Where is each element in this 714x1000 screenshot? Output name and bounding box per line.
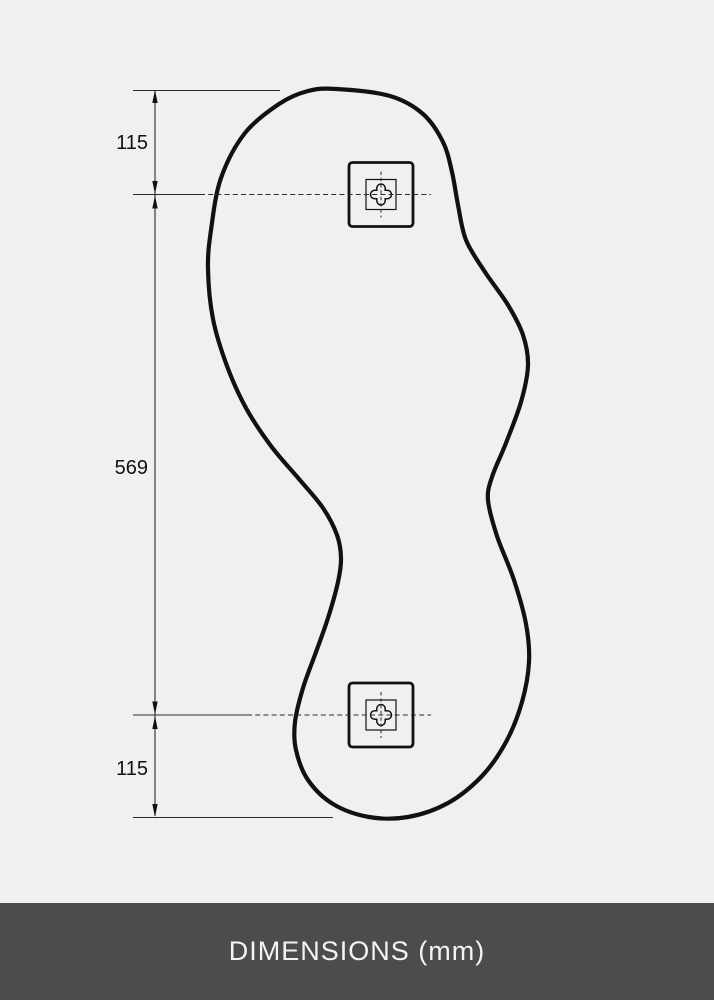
- footer-title: DIMENSIONS (mm): [229, 936, 485, 967]
- arrowhead-down-icon: [152, 181, 157, 194]
- dimension-label-middle: 569: [115, 457, 148, 479]
- dimension-label-bottom: 115: [116, 758, 148, 780]
- arrowhead-down-icon: [152, 804, 157, 817]
- dimension-diagram: 115 569 115: [0, 0, 714, 903]
- arrowhead-up-icon: [152, 196, 157, 209]
- footer-bar: DIMENSIONS (mm): [0, 903, 714, 1000]
- arrowhead-up-icon: [152, 716, 157, 729]
- arrowhead-down-icon: [152, 702, 157, 715]
- arrowhead-up-icon: [152, 90, 157, 103]
- dimension-label-top: 115: [116, 132, 148, 154]
- technical-drawing: 115 569 115: [0, 0, 714, 903]
